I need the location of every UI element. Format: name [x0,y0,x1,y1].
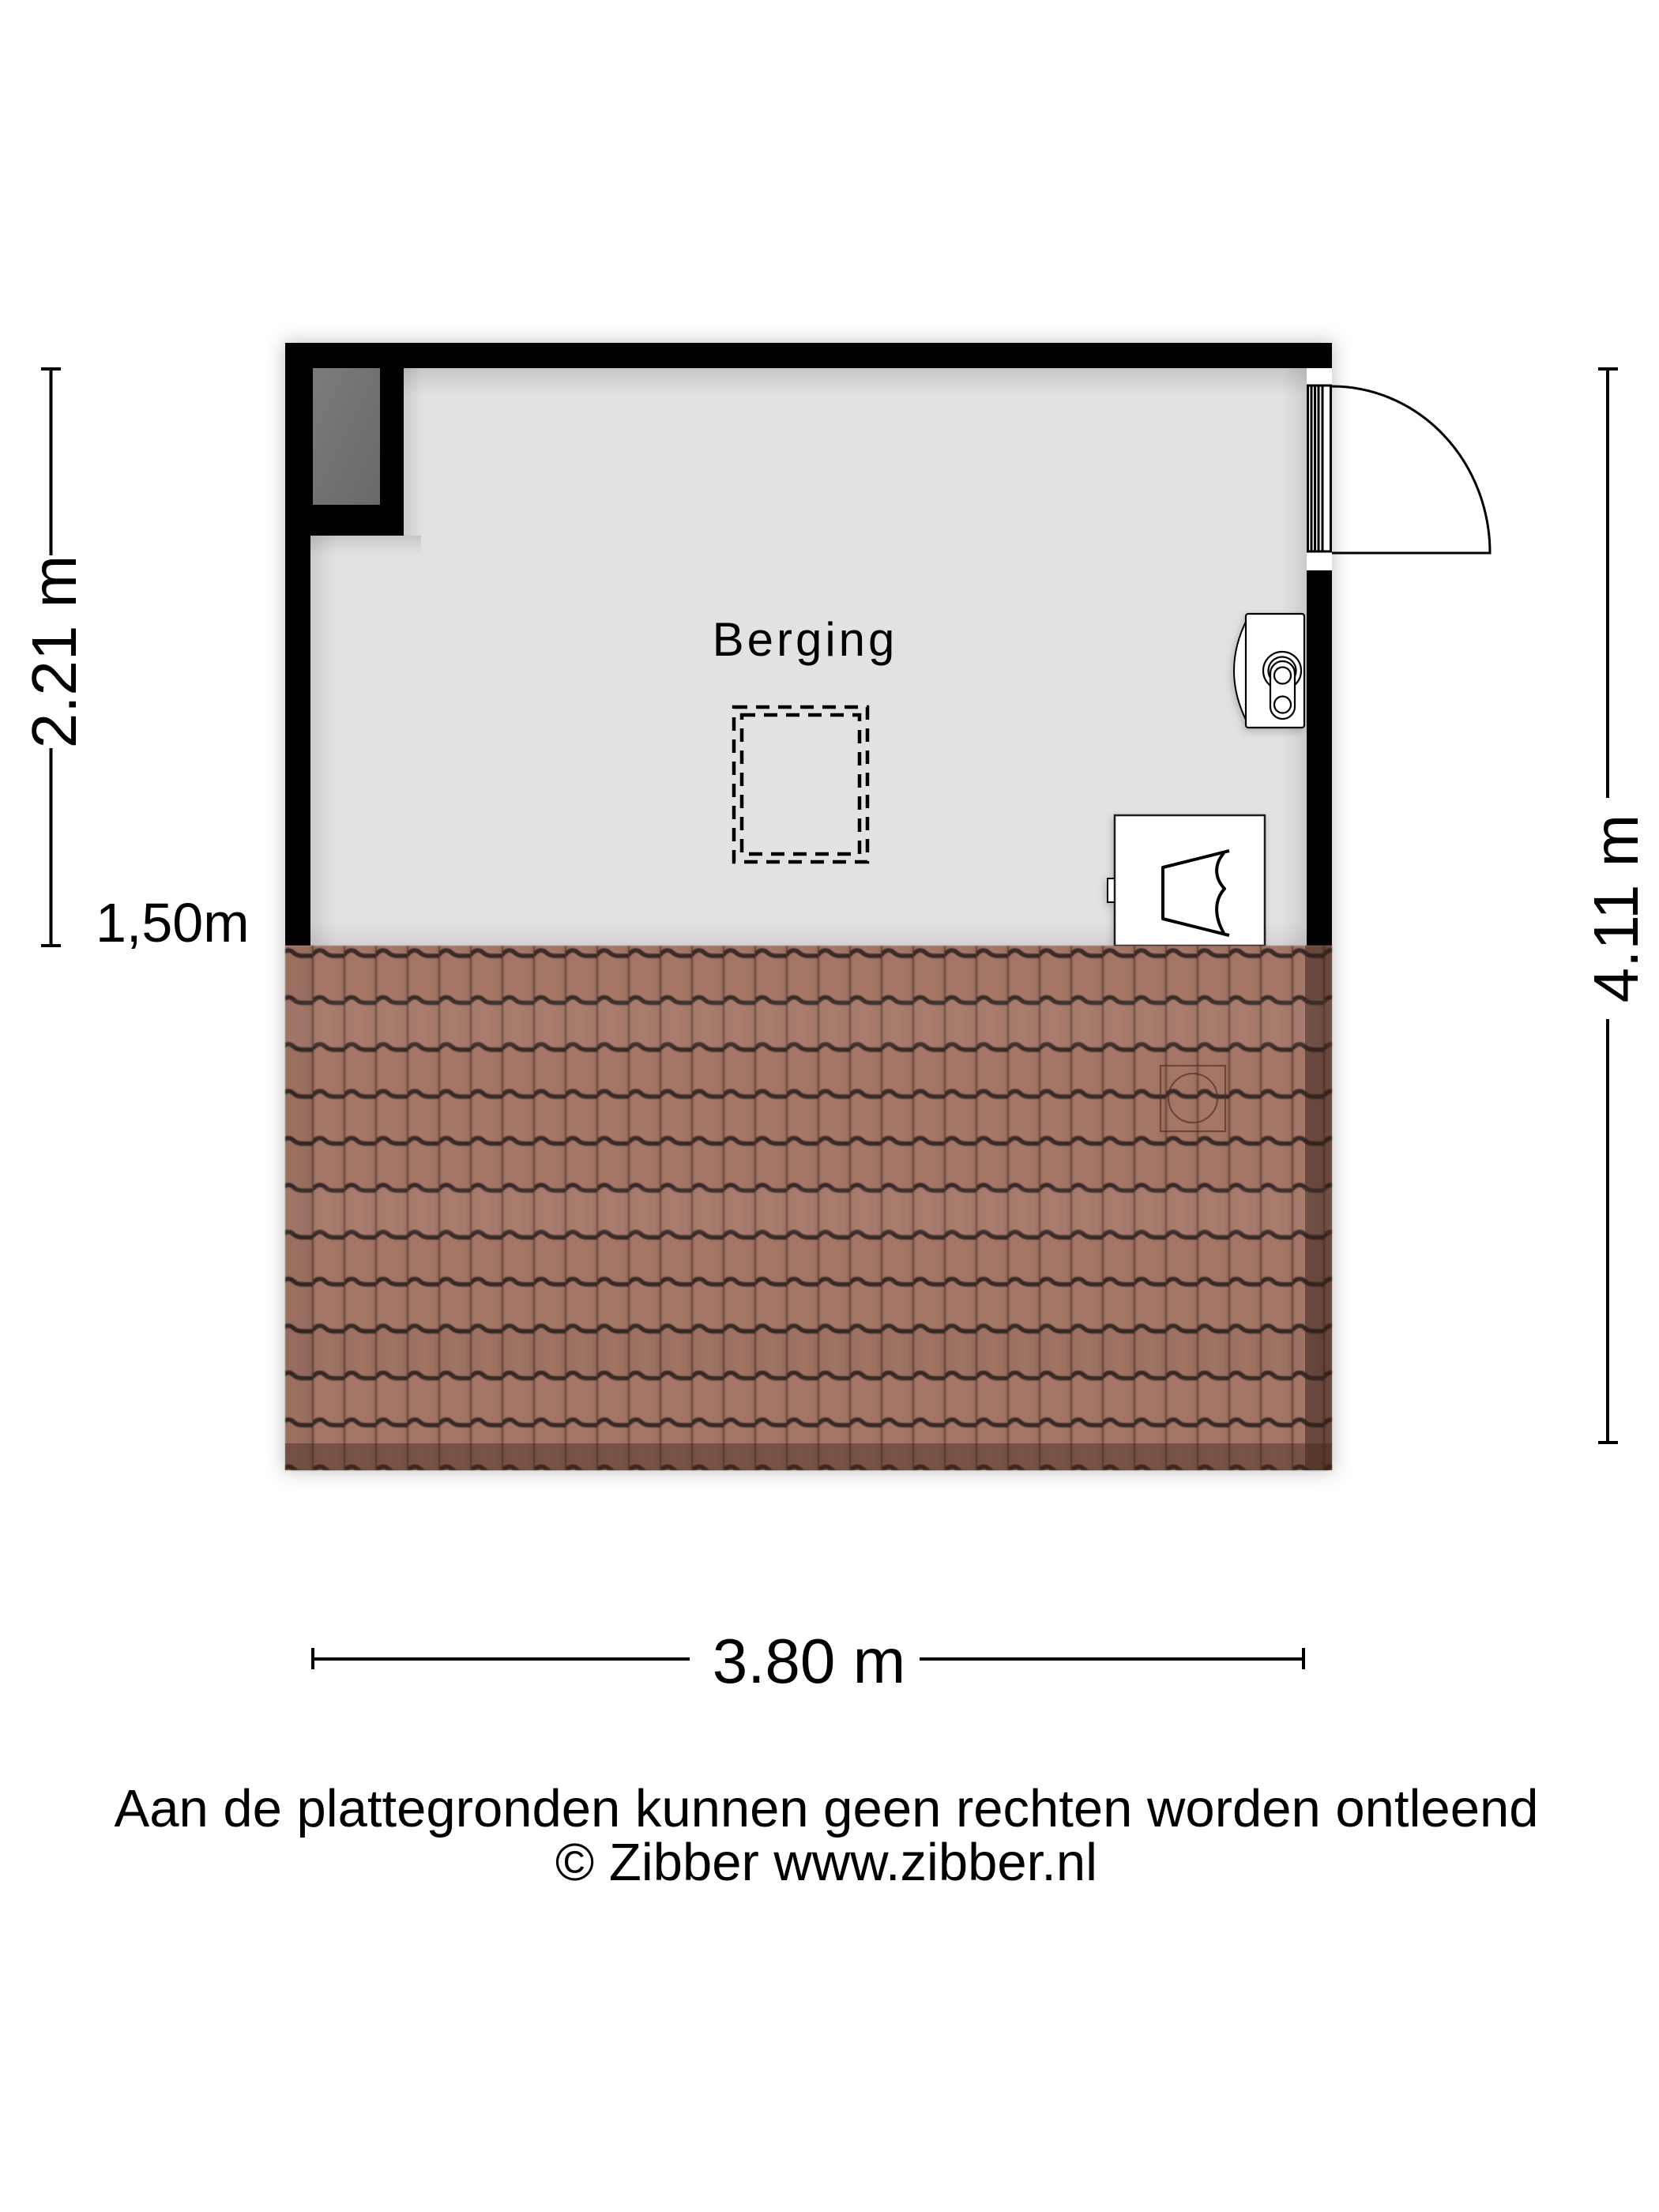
svg-text:1,50m: 1,50m [96,892,250,954]
svg-text:2.21 m: 2.21 m [19,555,89,749]
svg-text:Aan de plattegronden kunnen ge: Aan de plattegronden kunnen geen rechten… [115,1779,1539,1838]
svg-text:3.80 m: 3.80 m [713,1626,906,1696]
svg-text:© Zibber www.zibber.nl: © Zibber www.zibber.nl [555,1833,1097,1892]
svg-text:4.11 m: 4.11 m [1581,814,1651,1003]
svg-text:Berging: Berging [713,613,898,666]
